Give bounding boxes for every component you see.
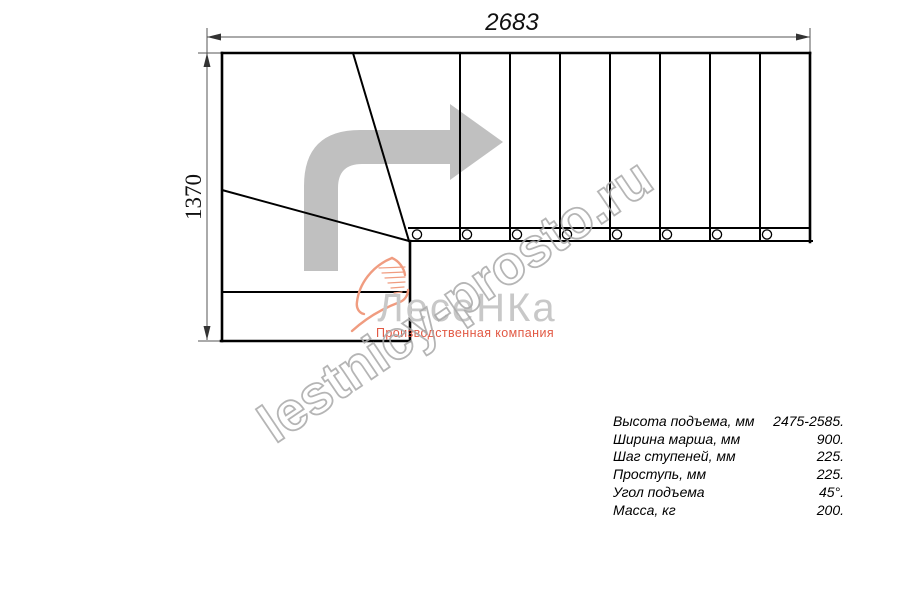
stair-plan-drawing: 2683 1370 [0,0,900,600]
spec-label: Шаг ступеней, мм [613,448,736,466]
dim-length-label: 2683 [484,9,539,36]
spec-row-tread: Проступь, мм 225. [613,466,844,484]
spec-label: Угол подъема [613,484,705,502]
dim-width-label: 1370 [181,174,206,220]
spec-row-flight-width: Ширина марша, мм 900. [613,431,844,449]
spec-value: 200. [817,502,844,520]
spec-label: Высота подъема, мм [613,413,755,431]
spec-row-step-pitch: Шаг ступеней, мм 225. [613,448,844,466]
spec-label: Масса, кг [613,502,676,520]
direction-arrow [304,104,503,271]
spec-value: 225. [817,466,844,484]
spec-value: 2475-2585. [773,413,844,431]
spec-row-height: Высота подъема, мм 2475-2585. [613,413,844,431]
spec-value: 45°. [819,484,844,502]
spec-value: 225. [817,448,844,466]
spec-table: Высота подъема, мм 2475-2585. Ширина мар… [613,413,844,519]
spec-row-angle: Угол подъема 45°. [613,484,844,502]
spec-label: Ширина марша, мм [613,431,740,449]
spec-value: 900. [817,431,844,449]
spec-label: Проступь, мм [613,466,706,484]
spec-row-mass: Масса, кг 200. [613,502,844,520]
